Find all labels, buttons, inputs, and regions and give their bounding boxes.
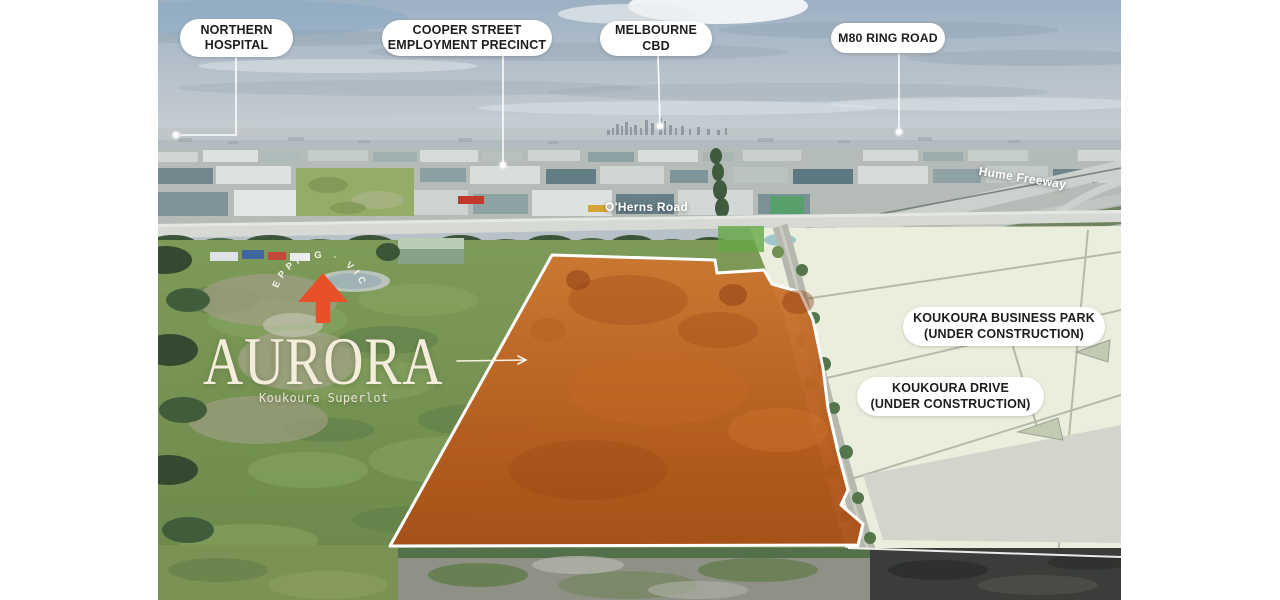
- foreground-ground: [158, 545, 1121, 600]
- up-arrow-icon: [297, 273, 349, 323]
- site-label: (UNDER CONSTRUCTION): [871, 397, 1031, 412]
- callout-label: CBD: [642, 39, 670, 54]
- callout-northern-hospital: NORTHERN HOSPITAL: [180, 19, 293, 57]
- callout-label: NORTHERN: [200, 23, 272, 38]
- site-label: KOUKOURA BUSINESS PARK: [913, 311, 1095, 326]
- callout-melbourne-cbd: MELBOURNE CBD: [600, 21, 712, 56]
- callout-label: HOSPITAL: [205, 38, 268, 53]
- site-label: (UNDER CONSTRUCTION): [924, 327, 1084, 342]
- label-koukoura-drive: KOUKOURA DRIVE (UNDER CONSTRUCTION): [857, 377, 1044, 416]
- callout-label: COOPER STREET: [413, 23, 522, 38]
- label-koukoura-business-park: KOUKOURA BUSINESS PARK (UNDER CONSTRUCTI…: [903, 307, 1105, 346]
- infill-field: [296, 168, 414, 216]
- callout-label: M80 RING ROAD: [838, 31, 938, 46]
- callout-label: EMPLOYMENT PRECINCT: [388, 38, 546, 53]
- callout-label: MELBOURNE: [615, 23, 697, 38]
- site-label: KOUKOURA DRIVE: [892, 381, 1009, 396]
- brand-wordmark: AURORA: [203, 327, 443, 395]
- callout-cooper-street: COOPER STREET EMPLOYMENT PRECINCT: [382, 20, 552, 56]
- brand-tagline: Koukoura Superlot: [259, 391, 389, 405]
- marketing-aerial-page: NORTHERN HOSPITAL COOPER STREET EMPLOYME…: [0, 0, 1280, 600]
- oherns-road-label: O'Herns Road: [605, 200, 688, 214]
- callout-m80-ring-road: M80 RING ROAD: [831, 23, 945, 53]
